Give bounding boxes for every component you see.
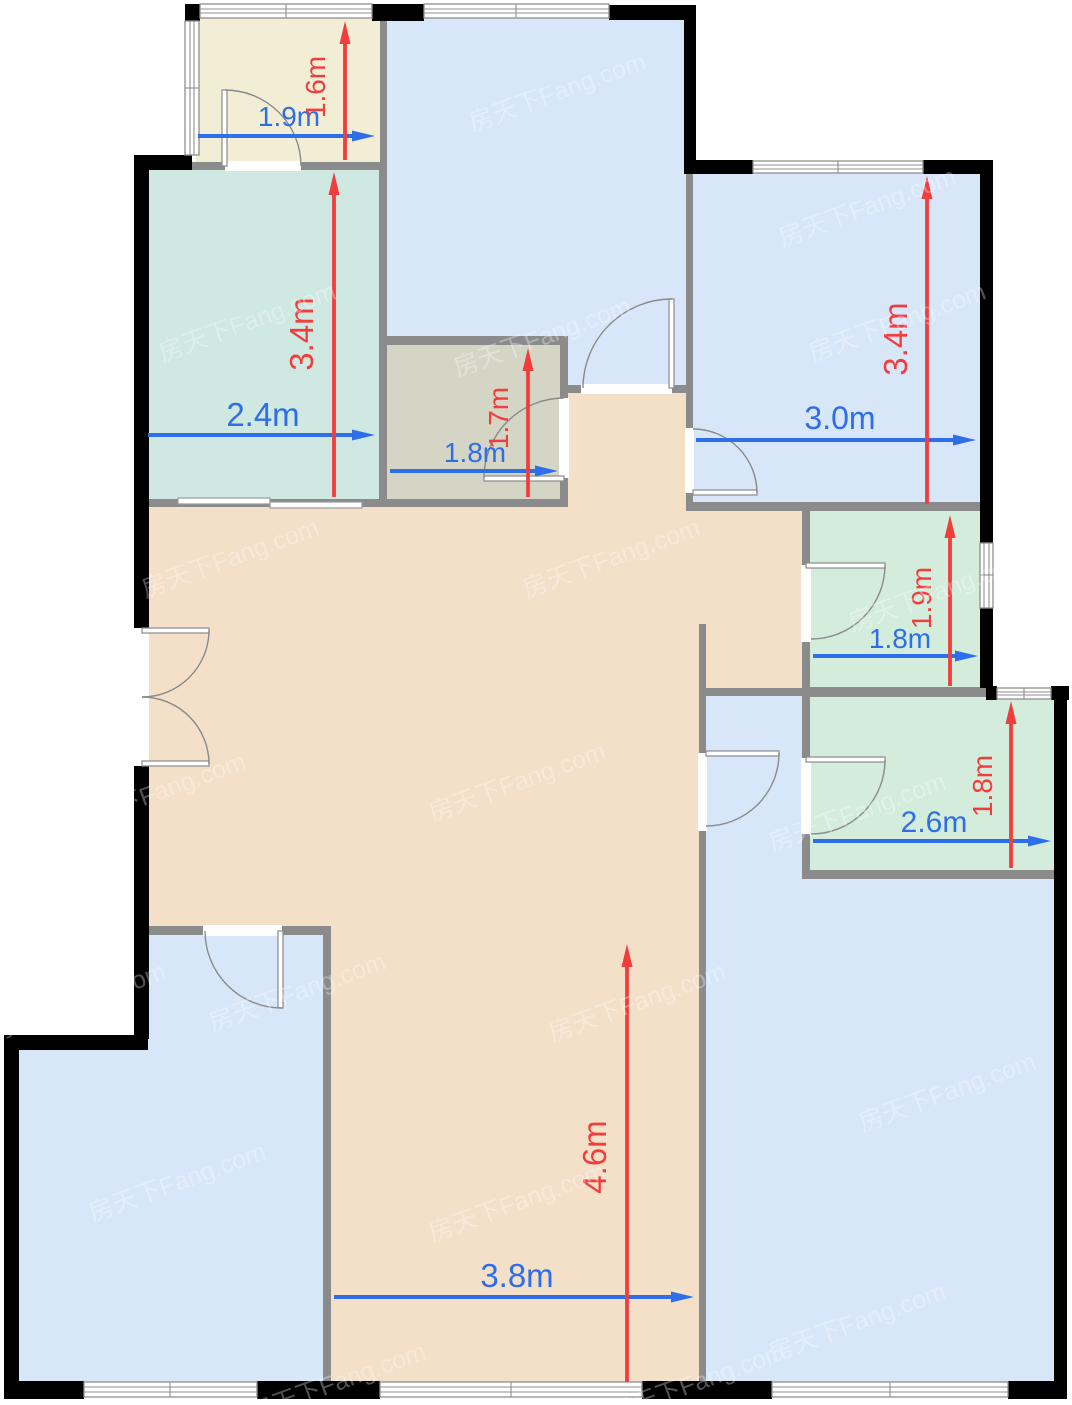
svg-text:1.6m: 1.6m (300, 56, 331, 118)
svg-text:1.7m: 1.7m (483, 387, 514, 449)
svg-text:3.8m: 3.8m (480, 1257, 553, 1294)
svg-text:1.8m: 1.8m (967, 755, 998, 817)
svg-text:2.6m: 2.6m (901, 806, 968, 839)
svg-text:2.4m: 2.4m (226, 396, 299, 433)
svg-text:3.0m: 3.0m (804, 400, 875, 436)
